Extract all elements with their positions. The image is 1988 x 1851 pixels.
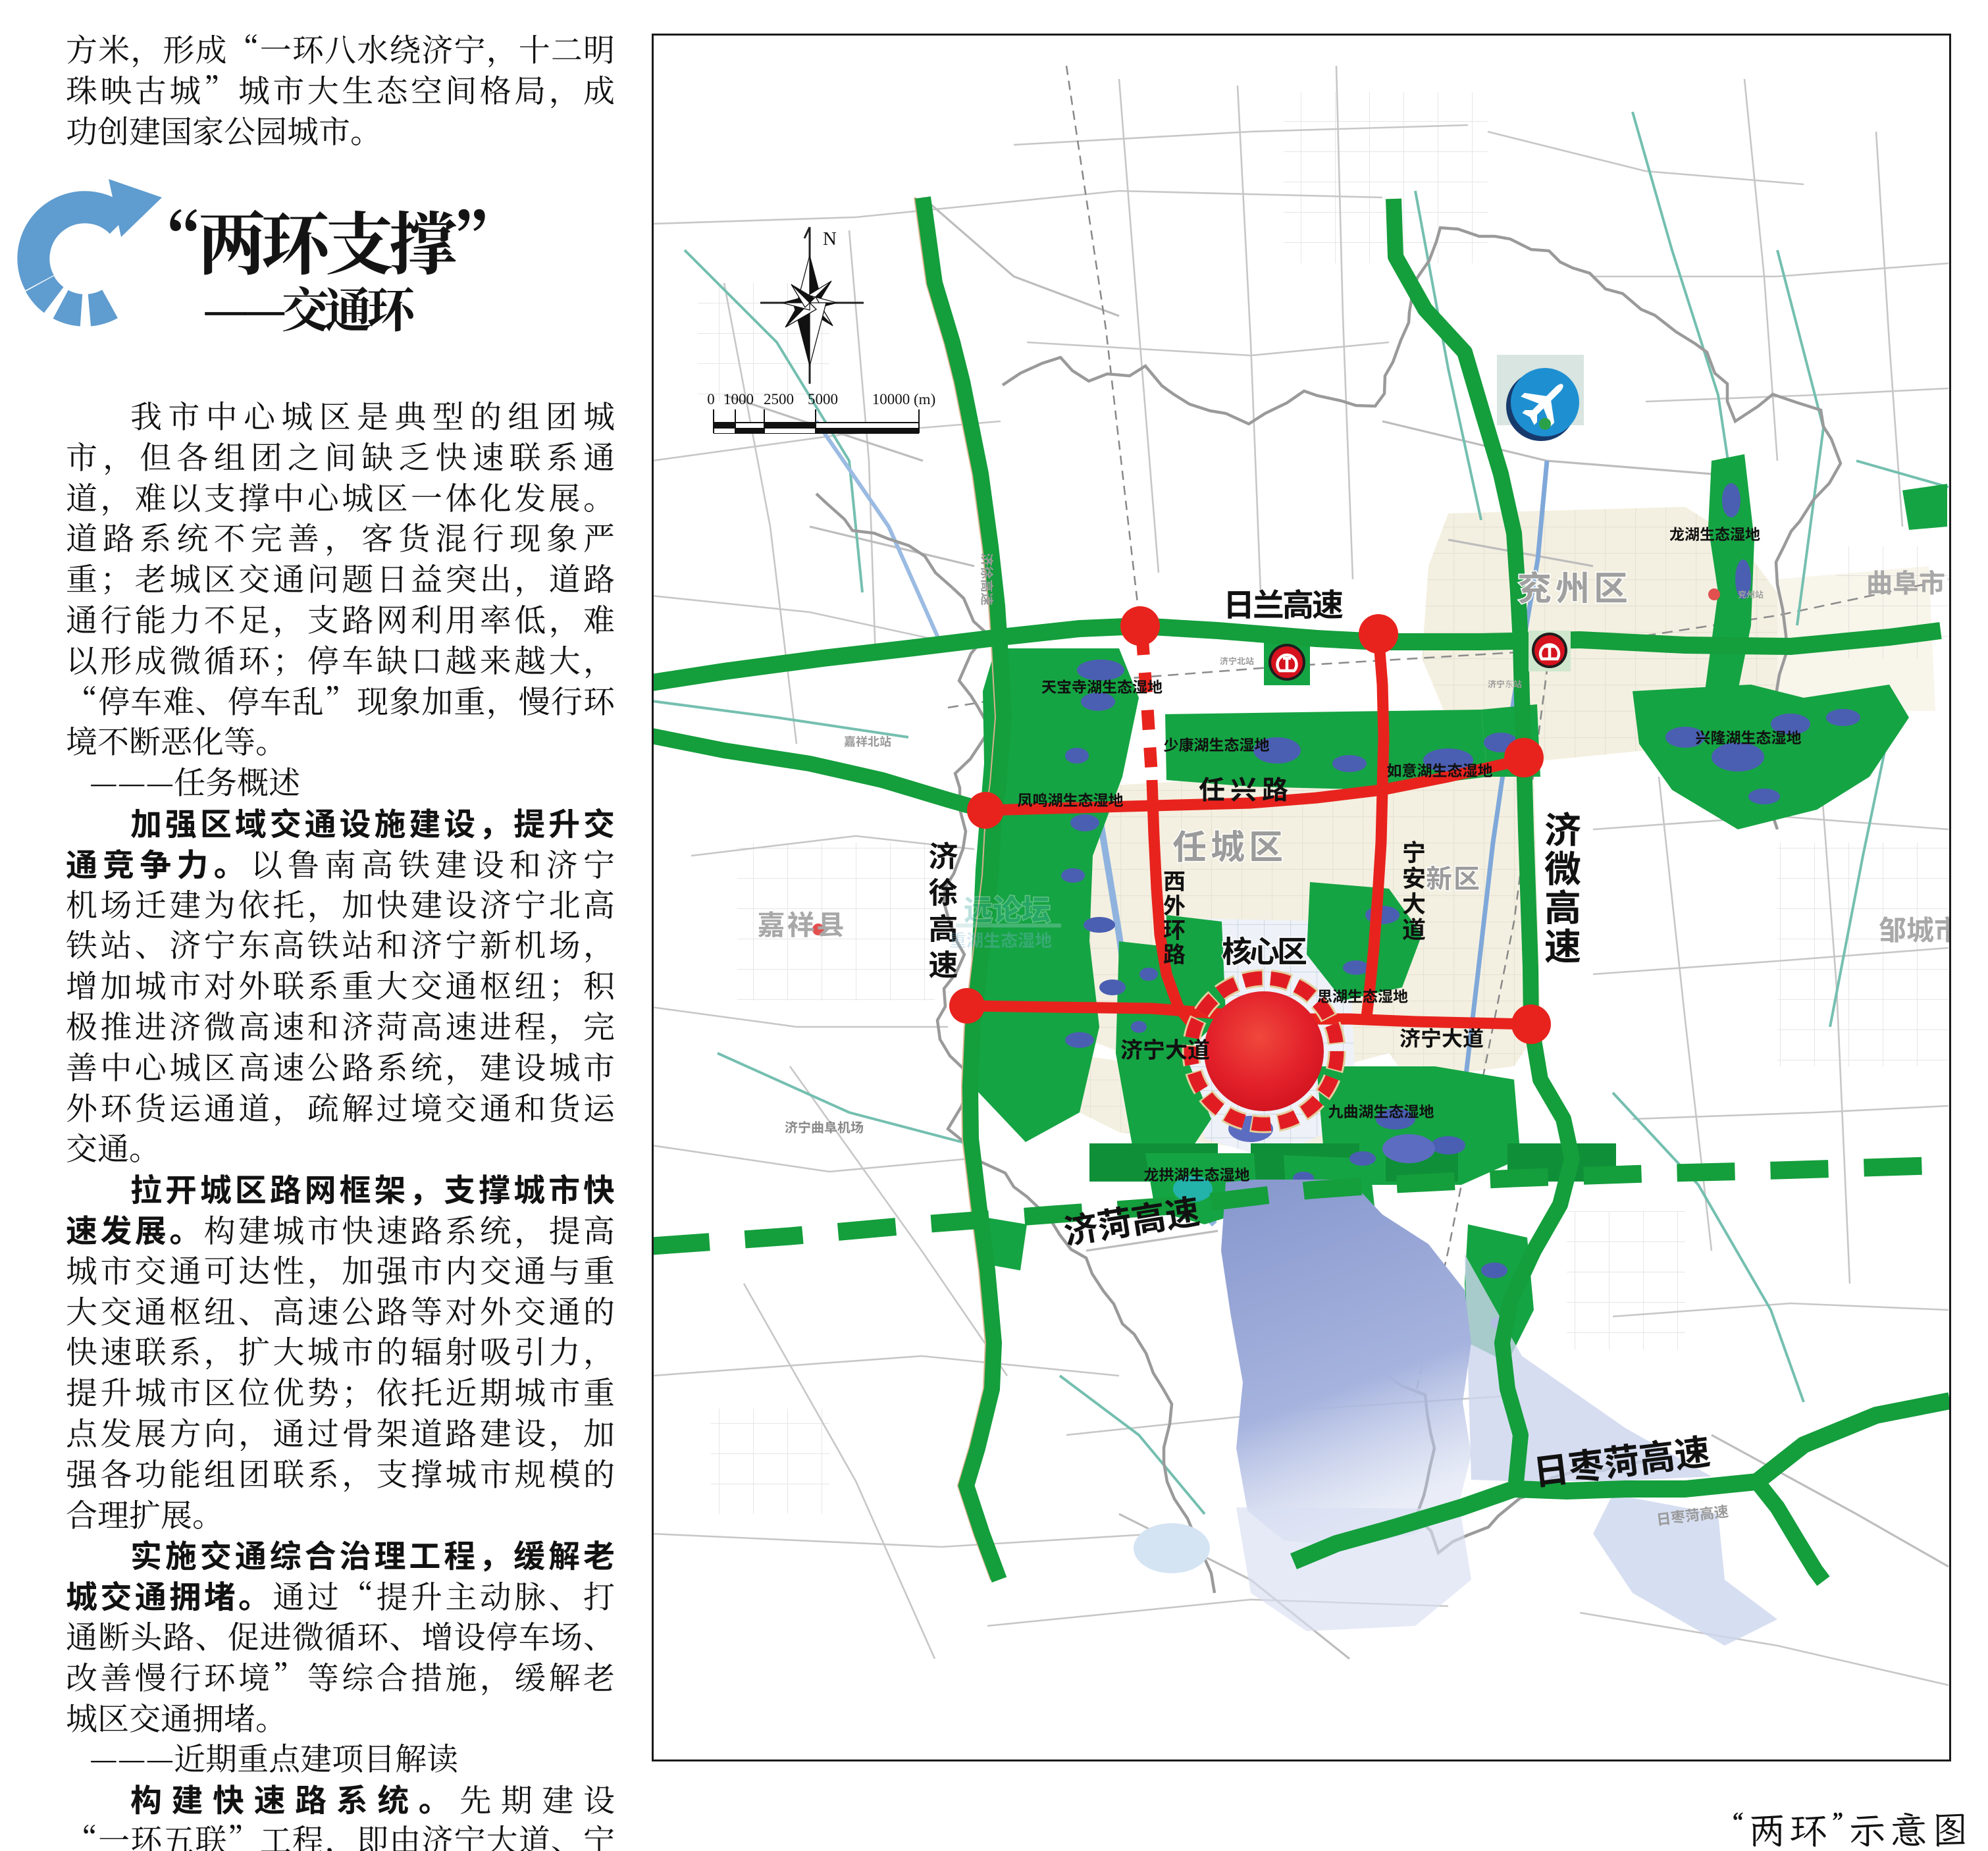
svg-text:重湖生态湿地: 重湖生态湿地 <box>949 927 1052 952</box>
svg-text:思湖生态湿地: 思湖生态湿地 <box>1317 984 1408 1006</box>
svg-text:龙湖生态湿地: 龙湖生态湿地 <box>1669 522 1760 544</box>
svg-text:核心区: 核心区 <box>1222 928 1307 972</box>
svg-text:兖州站: 兖州站 <box>1738 588 1764 600</box>
svg-text:兖州区: 兖州区 <box>1517 561 1632 610</box>
svg-text:2500: 2500 <box>764 391 794 407</box>
svg-text:龙拱湖生态湿地: 龙拱湖生态湿地 <box>1144 1162 1250 1185</box>
svg-text:道: 道 <box>1402 911 1426 945</box>
svg-text:如意湖生态湿地: 如意湖生态湿地 <box>1387 758 1493 781</box>
svg-text:路: 路 <box>1163 937 1186 969</box>
svg-text:嘉祥北站: 嘉祥北站 <box>844 733 891 750</box>
svg-text:1000: 1000 <box>723 391 754 407</box>
svg-text:任兴路: 任兴路 <box>1199 769 1294 807</box>
svg-text:新区: 新区 <box>1426 858 1481 896</box>
svg-text:济宁曲阜机场: 济宁曲阜机场 <box>785 1117 864 1136</box>
svg-text:济宁东站: 济宁东站 <box>1488 677 1522 690</box>
svg-text:嘉祥县: 嘉祥县 <box>757 903 846 943</box>
svg-text:5000: 5000 <box>808 391 838 407</box>
svg-text:速: 速 <box>1544 918 1581 971</box>
svg-text:九曲湖生态湿地: 九曲湖生态湿地 <box>1328 1099 1434 1122</box>
svg-text:0: 0 <box>707 391 715 407</box>
svg-text:邹城市: 邹城市 <box>1879 908 1951 949</box>
svg-text:N: N <box>823 228 837 249</box>
svg-text:任城区: 任城区 <box>1172 820 1287 869</box>
svg-text:济徐高速: 济徐高速 <box>978 553 997 606</box>
svg-text:凤鸣湖生态湿地: 凤鸣湖生态湿地 <box>1018 788 1124 810</box>
svg-text:济宁大道: 济宁大道 <box>1120 1032 1210 1064</box>
svg-text:天宝寺湖生态湿地: 天宝寺湖生态湿地 <box>1041 675 1163 697</box>
svg-text:济宁大道: 济宁大道 <box>1399 1022 1484 1053</box>
svg-text:10000 (m): 10000 (m) <box>872 391 935 407</box>
svg-text:日兰高速: 日兰高速 <box>1223 579 1343 625</box>
svg-text:远论坛: 远论坛 <box>964 887 1051 929</box>
svg-text:曲阜市: 曲阜市 <box>1866 562 1945 600</box>
svg-text:少康湖生态湿地: 少康湖生态湿地 <box>1164 733 1270 755</box>
svg-text:济宁北站: 济宁北站 <box>1220 654 1254 667</box>
svg-text:兴隆湖生态湿地: 兴隆湖生态湿地 <box>1696 725 1802 748</box>
